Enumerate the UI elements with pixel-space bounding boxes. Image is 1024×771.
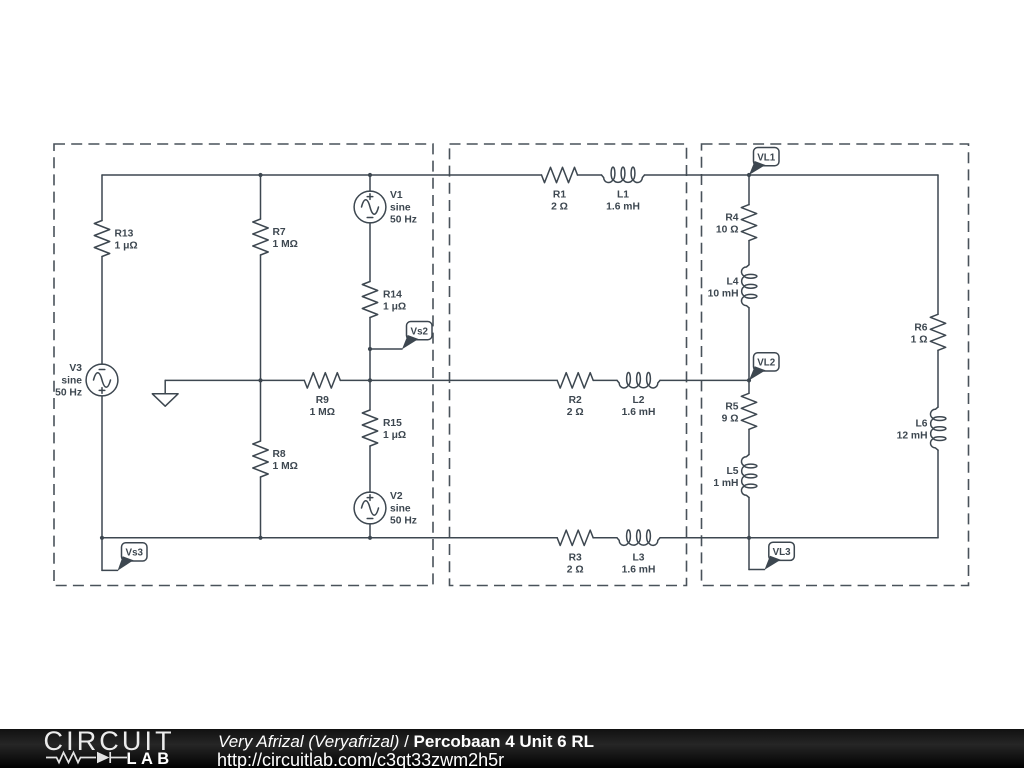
svg-text:R8: R8 [273,449,286,460]
svg-text:LAB: LAB [127,750,174,768]
svg-text:10 Ω: 10 Ω [716,225,739,236]
svg-text:Vs3: Vs3 [126,548,144,559]
svg-text:sine: sine [390,203,411,214]
svg-text:R7: R7 [273,227,286,238]
svg-text:sine: sine [61,376,82,387]
svg-text:VL3: VL3 [773,547,792,558]
svg-text:1 μΩ: 1 μΩ [383,430,406,441]
svg-text:R9: R9 [316,395,329,406]
svg-text:R5: R5 [725,401,738,412]
svg-text:R15: R15 [383,418,402,429]
svg-text:1 MΩ: 1 MΩ [310,407,335,418]
svg-text:L3: L3 [632,552,644,563]
svg-text:L2: L2 [632,395,644,406]
svg-text:2 Ω: 2 Ω [551,202,568,213]
svg-text:9 Ω: 9 Ω [722,413,739,424]
svg-text:1 Ω: 1 Ω [911,334,928,345]
svg-text:1.6 mH: 1.6 mH [606,202,640,213]
svg-text:1 μΩ: 1 μΩ [115,241,138,252]
svg-text:2 Ω: 2 Ω [567,564,584,575]
svg-text:1 μΩ: 1 μΩ [383,302,406,313]
svg-text:50 Hz: 50 Hz [390,214,417,225]
svg-text:V1: V1 [390,190,403,201]
svg-text:Vs2: Vs2 [411,326,429,337]
svg-text:V2: V2 [390,491,403,502]
svg-text:R14: R14 [383,290,402,301]
svg-text:VL2: VL2 [757,358,776,369]
svg-text:1.6 mH: 1.6 mH [622,564,656,575]
svg-text:VL1: VL1 [757,152,776,163]
svg-text:10 mH: 10 mH [708,288,739,299]
svg-text:L5: L5 [726,466,738,477]
svg-text:R6: R6 [914,322,927,333]
svg-text:V3: V3 [69,363,82,374]
svg-text:R13: R13 [115,229,134,240]
svg-text:R3: R3 [569,552,582,563]
svg-text:R1: R1 [553,190,566,201]
svg-text:R4: R4 [725,213,738,224]
svg-text:sine: sine [390,504,411,515]
svg-text:1 MΩ: 1 MΩ [273,461,298,472]
svg-text:1 MΩ: 1 MΩ [273,239,298,250]
svg-text:L1: L1 [617,190,629,201]
svg-text:2 Ω: 2 Ω [567,407,584,418]
svg-text:L4: L4 [726,276,738,287]
svg-text:L6: L6 [915,419,927,430]
svg-text:12 mH: 12 mH [897,431,928,442]
svg-text:R2: R2 [569,395,582,406]
svg-text:1 mH: 1 mH [713,478,738,489]
svg-text:50 Hz: 50 Hz [390,515,417,526]
svg-text:50 Hz: 50 Hz [55,387,82,398]
svg-text:1.6 mH: 1.6 mH [622,407,656,418]
